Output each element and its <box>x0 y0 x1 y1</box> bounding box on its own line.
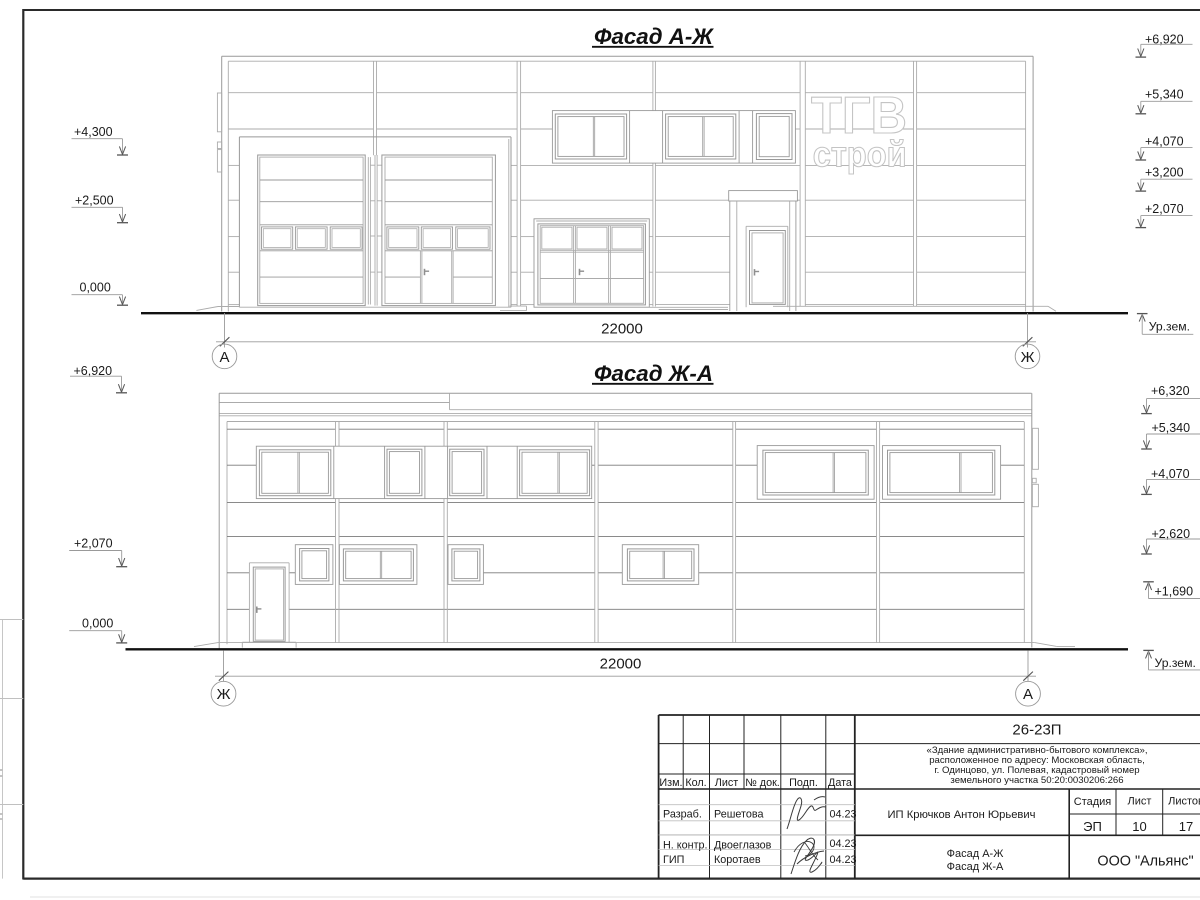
svg-text:Фасад А-Ж: Фасад А-Ж <box>594 24 714 49</box>
svg-text:+4,070: +4,070 <box>1151 467 1190 481</box>
svg-text:А: А <box>219 349 229 366</box>
svg-text:Подп.: Подп. <box>789 777 818 789</box>
svg-text:Ж: Ж <box>1021 349 1035 366</box>
svg-text:+4,070: +4,070 <box>1145 134 1184 148</box>
svg-text:Кол.: Кол. <box>685 777 706 789</box>
svg-text:22000: 22000 <box>600 655 642 672</box>
svg-text:Лист: Лист <box>715 777 739 789</box>
svg-text:ООО "Альянс": ООО "Альянс" <box>1097 854 1193 870</box>
svg-text:10: 10 <box>1132 819 1146 834</box>
svg-text:ГИП: ГИП <box>663 854 684 866</box>
svg-text:04.23: 04.23 <box>830 854 857 866</box>
svg-text:ЭП: ЭП <box>1083 819 1102 834</box>
svg-text:ИП Крючков Антон Юрьевич: ИП Крючков Антон Юрьевич <box>888 809 1036 821</box>
svg-text:+5,340: +5,340 <box>1152 421 1191 435</box>
svg-text:+2,070: +2,070 <box>1145 202 1184 216</box>
svg-text:Ур.зем.: Ур.зем. <box>1149 320 1190 334</box>
svg-text:04.23: 04.23 <box>830 808 857 820</box>
svg-text:А: А <box>1023 686 1033 703</box>
svg-text:04.23: 04.23 <box>830 838 857 850</box>
svg-text:+4,300: +4,300 <box>74 125 113 139</box>
svg-text:Н. контр.: Н. контр. <box>663 839 708 851</box>
svg-text:Фасад А-Ж: Фасад А-Ж <box>947 848 1004 860</box>
svg-text:Двоеглазов: Двоеглазов <box>714 839 772 851</box>
svg-text:+2,500: +2,500 <box>75 193 114 207</box>
svg-text:Ур.зем.: Ур.зем. <box>1155 656 1196 670</box>
svg-text:+1,690: +1,690 <box>1155 584 1194 598</box>
svg-text:17: 17 <box>1179 819 1193 834</box>
svg-text:Изм.: Изм. <box>659 777 682 789</box>
svg-text:Ж: Ж <box>217 686 231 703</box>
svg-text:земельного участка 50:20:00302: земельного участка 50:20:0030206:266 <box>950 775 1123 786</box>
svg-text:Стадия: Стадия <box>1074 796 1112 808</box>
svg-text:0,000: 0,000 <box>80 281 111 295</box>
svg-text:+5,340: +5,340 <box>1145 88 1184 102</box>
svg-text:0,000: 0,000 <box>82 617 113 631</box>
svg-text:№ док.: № док. <box>745 777 780 789</box>
svg-text:Дата: Дата <box>828 777 852 789</box>
svg-text:Фасад Ж-А: Фасад Ж-А <box>594 361 713 386</box>
svg-text:+6,320: +6,320 <box>1151 384 1190 398</box>
svg-text:строй: строй <box>813 134 907 175</box>
svg-text:+2,070: +2,070 <box>74 537 113 551</box>
svg-text:Решетова: Решетова <box>714 808 764 820</box>
svg-text:Лист: Лист <box>1128 796 1152 808</box>
svg-text:+3,200: +3,200 <box>1145 166 1184 180</box>
svg-text:Разраб.: Разраб. <box>663 808 702 820</box>
svg-text:Листов: Листов <box>1168 796 1200 808</box>
svg-text:22000: 22000 <box>601 321 643 338</box>
svg-text:26-23П: 26-23П <box>1012 722 1061 739</box>
svg-text:Коротаев: Коротаев <box>714 854 761 866</box>
svg-text:Фасад Ж-А: Фасад Ж-А <box>947 861 1004 873</box>
